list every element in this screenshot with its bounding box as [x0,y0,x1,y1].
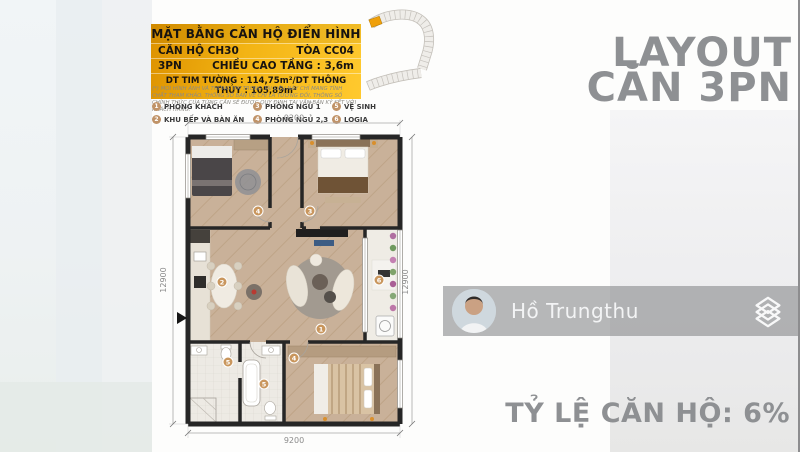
svg-text:2: 2 [220,278,225,286]
svg-text:4: 4 [292,354,297,362]
card-row-type: 3PN CHIỀU CAO TẦNG : 3,6m [151,58,361,73]
card-title: MẶT BẰNG CĂN HỘ ĐIỂN HÌNH [151,24,361,43]
svg-text:1: 1 [319,325,324,333]
room-marker: 3 [305,206,315,216]
room-marker: 6 [374,275,384,285]
site-key-plan [363,6,443,112]
dim-left: 12900 [159,267,168,292]
room-marker: 1 [316,324,326,334]
page-title: LAYOUT CĂN 3PN [587,36,792,106]
room-marker: 4 [289,353,299,363]
dim-right: 12900 [401,269,410,294]
unit-type: 3PN [158,60,182,72]
room-marker: 5 [259,379,269,389]
floor-plan: 1 2 3 4 4 5 5 6 9200 [150,110,440,452]
brand-logo-icon [750,294,786,334]
dim-bottom: 9200 [284,436,304,445]
page-title-line2: CĂN 3PN [587,71,792,106]
unit-ratio-text: TỶ LỆ CĂN HỘ: 6% [505,398,790,429]
card-row-unit: CĂN HỘ CH30 TÒA CC04 [151,43,361,58]
room-marker: 2 [217,277,227,287]
svg-text:3: 3 [308,207,313,215]
unit-code: CĂN HỘ CH30 [158,45,239,57]
tower-code: TÒA CC04 [296,45,354,57]
svg-text:5: 5 [226,358,231,366]
slide: MẶT BẰNG CĂN HỘ ĐIỂN HÌNH CĂN HỘ CH30 TÒ… [0,0,800,452]
dim-top: 9200 [284,114,304,123]
svg-text:6: 6 [377,276,382,284]
background-trees [0,382,152,452]
room-marker: 4 [253,206,263,216]
svg-text:4: 4 [256,207,261,215]
avatar [452,289,496,333]
agent-bar: Hồ Trungthu [443,286,800,336]
room-marker: 5 [223,357,233,367]
svg-text:5: 5 [262,380,267,388]
ceiling-height: CHIỀU CAO TẦNG : 3,6m [212,60,354,72]
agent-name: Hồ Trungthu [511,299,639,323]
highlighted-unit-icon [369,16,382,27]
